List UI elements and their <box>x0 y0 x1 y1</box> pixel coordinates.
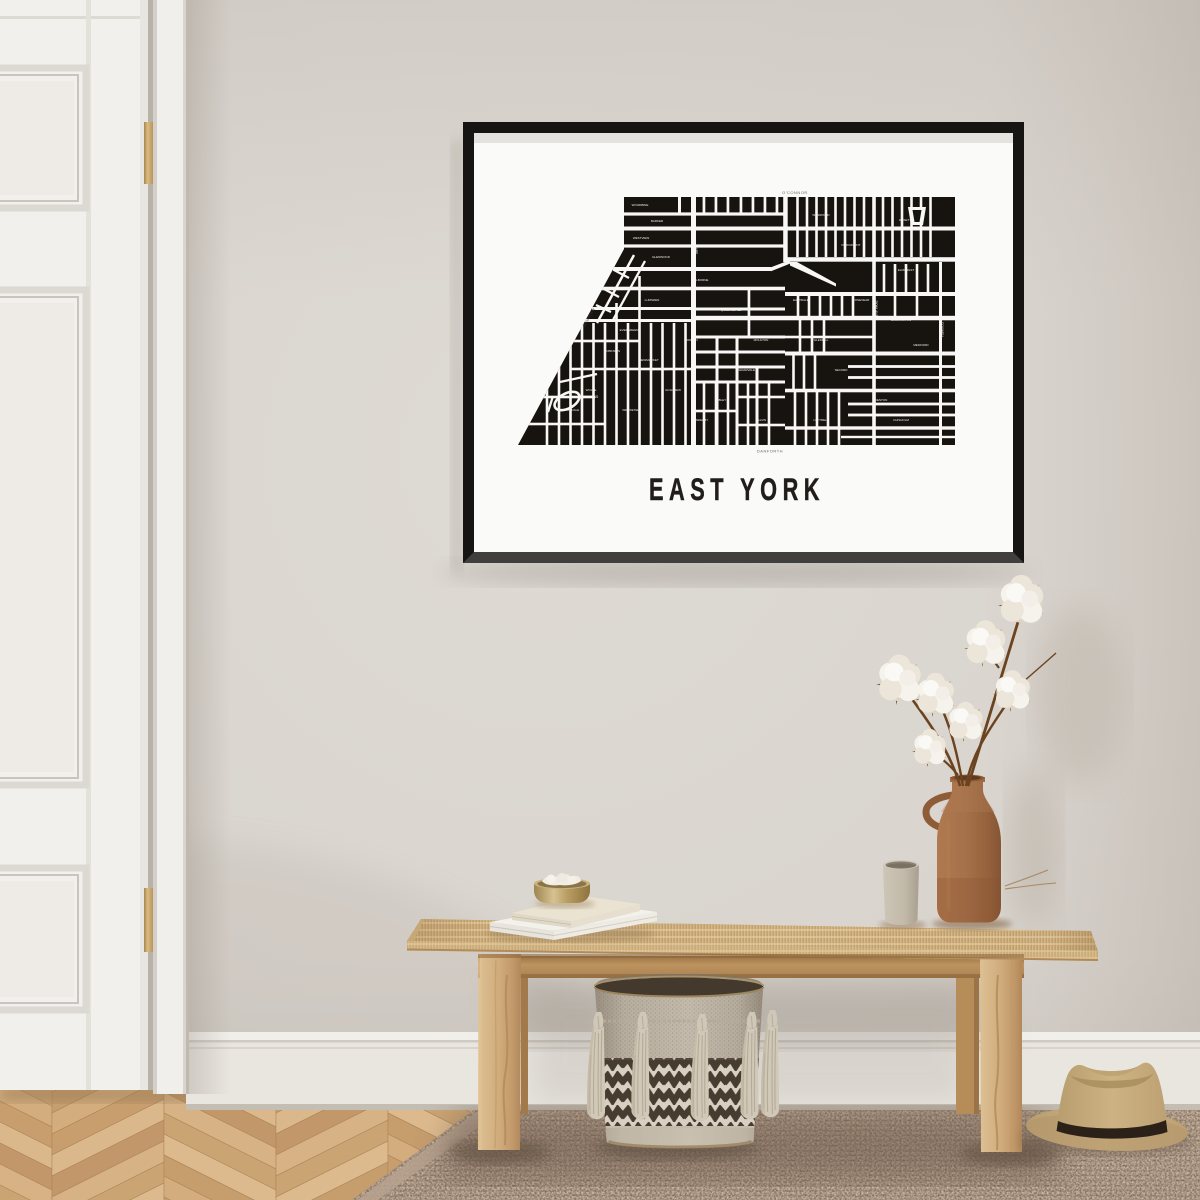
svg-text:SECORD: SECORD <box>835 368 849 372</box>
svg-text:DENTON: DENTON <box>875 398 888 402</box>
svg-text:COSBURN: COSBURN <box>704 267 722 271</box>
svg-text:ROBINSON: ROBINSON <box>604 349 620 353</box>
svg-text:KELVIN: KELVIN <box>756 418 766 422</box>
svg-text:MOULTON: MOULTON <box>754 338 769 342</box>
svg-text:ROSETTA: ROSETTA <box>899 218 913 222</box>
svg-text:MILVERTON: MILVERTON <box>883 389 903 393</box>
svg-text:WESTWOOD: WESTWOOD <box>796 316 817 320</box>
svg-text:GLENWOOD: GLENWOOD <box>652 255 671 259</box>
svg-text:GOLFVIEW: GOLFVIEW <box>665 388 681 392</box>
svg-text:CHISHOLM: CHISHOLM <box>893 418 909 422</box>
svg-text:GOWAN: GOWAN <box>641 245 655 249</box>
svg-text:COXWELL: COXWELL <box>940 322 944 339</box>
svg-text:SIBLEY: SIBLEY <box>716 398 727 402</box>
svg-text:MILTON: MILTON <box>896 292 909 296</box>
svg-text:BEE: BEE <box>645 307 653 311</box>
svg-text:LUTTRELL: LUTTRELL <box>813 418 828 422</box>
svg-text:MEMORIAL: MEMORIAL <box>721 380 739 384</box>
svg-text:PARKMOUNT: PARKMOUNT <box>842 243 861 247</box>
svg-text:EVERGREEN: EVERGREEN <box>620 328 639 332</box>
svg-text:CUFFLEY: CUFFLEY <box>702 287 718 291</box>
svg-text:POTTERY: POTTERY <box>648 213 665 217</box>
svg-text:DANFORTH: DANFORTH <box>757 449 783 454</box>
svg-text:MORTON: MORTON <box>684 338 697 342</box>
svg-text:HURNDALE: HURNDALE <box>563 408 580 412</box>
svg-text:HOLBORNE: HOLBORNE <box>692 278 709 282</box>
svg-text:TORRENS: TORRENS <box>582 395 599 399</box>
svg-text:GAMBLE: GAMBLE <box>644 227 659 231</box>
svg-text:WOLFE: WOLFE <box>586 388 597 392</box>
svg-text:MAIN: MAIN <box>927 388 935 392</box>
svg-text:WROXETER: WROXETER <box>622 408 640 412</box>
svg-text:QUEENSDALE: QUEENSDALE <box>721 308 742 312</box>
svg-text:PAPE: PAPE <box>694 246 698 256</box>
svg-text:DONLANDS: DONLANDS <box>874 301 878 321</box>
svg-text:WOODBINE: WOODBINE <box>632 203 649 207</box>
svg-text:GLEDHILL: GLEDHILL <box>814 338 829 342</box>
svg-text:MEDFORD: MEDFORD <box>913 343 929 347</box>
svg-text:WESTVIEW: WESTVIEW <box>633 236 650 240</box>
svg-text:ENDERBY: ENDERBY <box>694 418 709 422</box>
svg-text:BARKER: BARKER <box>651 219 664 223</box>
svg-text:CEDARVALE: CEDARVALE <box>737 368 755 372</box>
svg-text:ELMCREST: ELMCREST <box>898 268 915 272</box>
svg-text:STRATHMORE: STRATHMORE <box>858 426 882 430</box>
svg-text:EAST YORK: EAST YORK <box>649 471 825 507</box>
svg-text:PLAINS: PLAINS <box>894 352 907 356</box>
svg-text:O'CONNOR: O'CONNOR <box>782 190 808 195</box>
svg-text:MORTIMER: MORTIMER <box>715 316 734 320</box>
svg-text:BARRINGTON: BARRINGTON <box>891 318 911 322</box>
svg-text:ROSEVEAR: ROSEVEAR <box>853 298 871 302</box>
svg-text:WILDWOOD: WILDWOOD <box>812 213 830 217</box>
svg-text:SAMMON: SAMMON <box>652 367 668 371</box>
svg-text:LUMSDEN: LUMSDEN <box>645 298 660 302</box>
svg-text:NEWMARKET: NEWMARKET <box>639 358 659 362</box>
svg-text:EASTDALE: EASTDALE <box>793 298 809 302</box>
